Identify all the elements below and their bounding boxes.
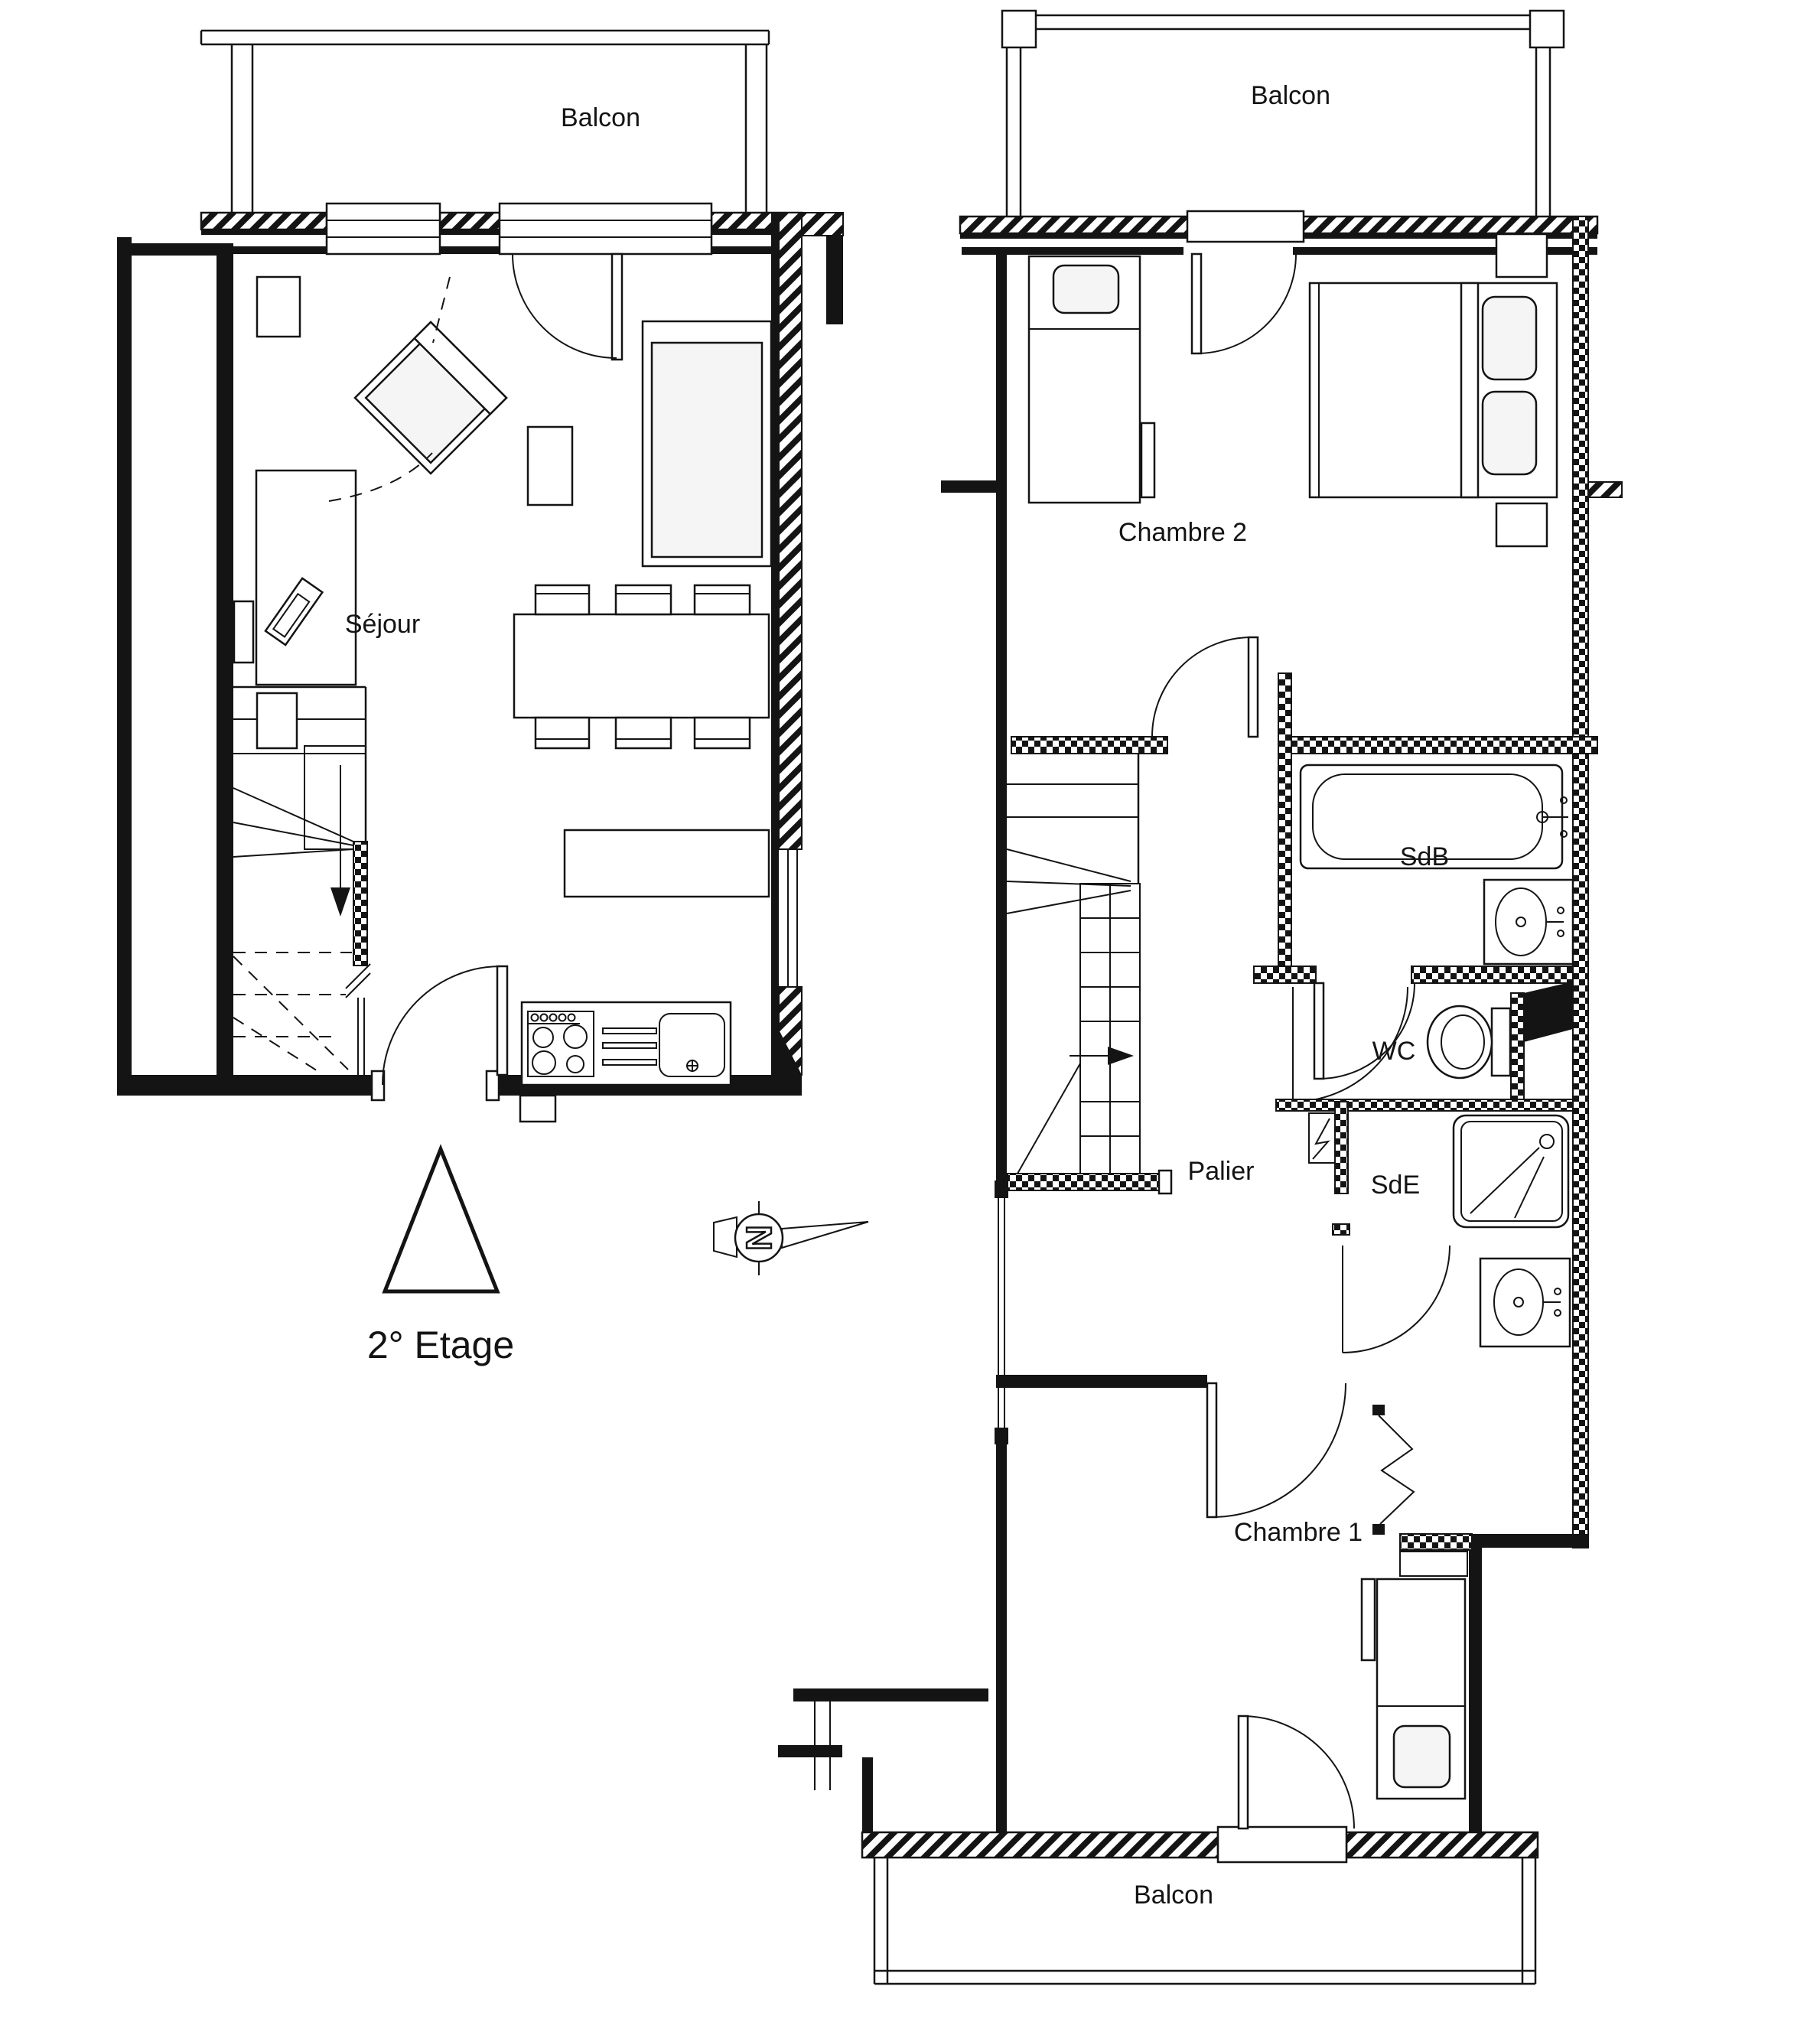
window-sejour-1 [327, 204, 440, 254]
door-chambre1 [1207, 1383, 1346, 1517]
label-floor: 2° Etage [367, 1324, 514, 1366]
cabinet-bottom-left [257, 693, 297, 748]
coffee-table [528, 427, 572, 505]
door-chambre2-balcony [1192, 254, 1296, 353]
compass-north: N [714, 1201, 868, 1275]
door-entry [383, 966, 507, 1085]
label-wc: WC [1372, 1037, 1416, 1066]
window-sejour-2 [500, 204, 711, 254]
label-balcon-left: Balcon [561, 103, 640, 132]
compass-n-letter: N [739, 1225, 779, 1250]
kitchen-counter [522, 1002, 731, 1085]
left-right-wall [771, 213, 843, 1075]
duct-box [1309, 1113, 1335, 1163]
stairs-right-plan [1007, 754, 1171, 1193]
bed-chambre1 [1362, 1579, 1465, 1799]
desk [256, 471, 356, 685]
chair [616, 585, 671, 614]
label-palier: Palier [1188, 1157, 1255, 1186]
kitchen-island [565, 830, 769, 897]
floorplan-sheet: Balcon [0, 0, 1820, 2032]
label-balcon-right-bottom: Balcon [1134, 1881, 1213, 1910]
left-balcony-railing [201, 31, 769, 213]
right-balcony-top [1002, 11, 1564, 217]
chair [536, 718, 589, 748]
stairs-right-arrow [1070, 1047, 1134, 1065]
right-plan: Balcon [778, 11, 1622, 1984]
floor-symbol: 2° Etage [367, 1149, 514, 1366]
nightstand [1496, 234, 1547, 277]
stairs-left-plan [233, 687, 370, 1075]
party-wall-stubs [778, 1688, 988, 1832]
chambre1: Chambre 1 [996, 1375, 1467, 1799]
label-sejour: Séjour [345, 610, 420, 639]
chambre2-bottom-wall [1011, 637, 1597, 754]
door-chambre1-balcony [1239, 1716, 1354, 1828]
sofa [643, 321, 771, 566]
label-sdb: SdB [1400, 842, 1449, 871]
double-bed [1310, 283, 1557, 497]
chair [616, 718, 671, 748]
chair [695, 585, 750, 614]
cabinet-top-left [257, 277, 300, 337]
label-chambre2: Chambre 2 [1118, 518, 1247, 547]
single-bed [1029, 256, 1154, 503]
label-sde: SdE [1371, 1171, 1420, 1200]
right-left-wall [941, 247, 1008, 1832]
left-outer-wall [117, 237, 233, 1096]
toilet [1428, 1006, 1510, 1078]
door-sde [1343, 1246, 1450, 1353]
shower [1454, 1115, 1568, 1227]
door-sejour-balcony [513, 254, 622, 360]
sink-sde [1480, 1259, 1570, 1347]
nightstand [1496, 503, 1547, 546]
shelf-left-wall [234, 601, 253, 663]
dining-table [514, 585, 769, 748]
salle-eau: SdE [1309, 1102, 1570, 1550]
sink-sdb [1484, 880, 1573, 964]
label-balcon-right-top: Balcon [1251, 81, 1330, 110]
left-plan: Balcon [117, 31, 843, 1122]
chair [695, 718, 750, 748]
label-chambre1: Chambre 1 [1234, 1518, 1363, 1547]
armchair [355, 322, 506, 474]
chair [536, 585, 589, 614]
door-stairs-chambre2 [1152, 637, 1258, 737]
